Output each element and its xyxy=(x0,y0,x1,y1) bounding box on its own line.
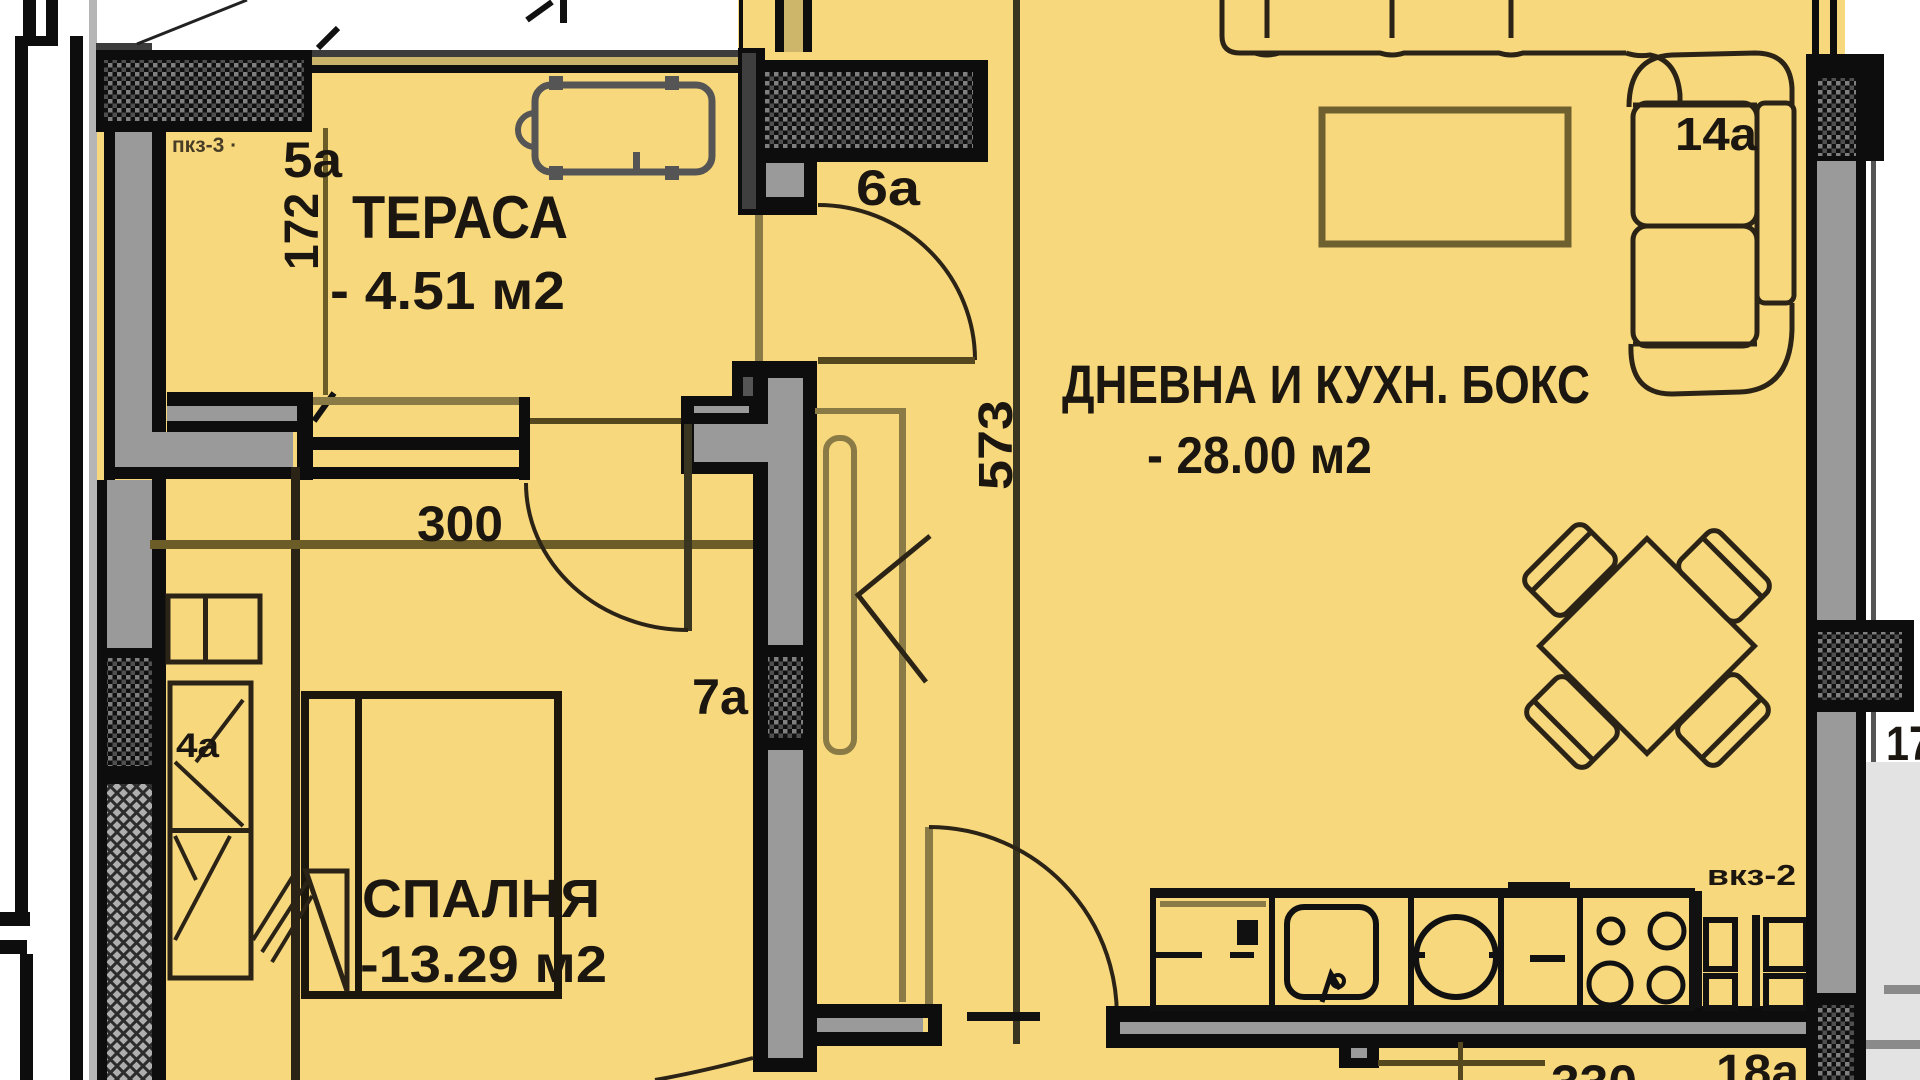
svg-text:17: 17 xyxy=(1886,718,1920,771)
svg-text:ДНЕВНА И КУХН. БОКС: ДНЕВНА И КУХН. БОКС xyxy=(1062,355,1590,415)
svg-text:330: 330 xyxy=(1551,1055,1637,1080)
svg-text:14а: 14а xyxy=(1675,108,1757,160)
svg-text:- 4.51 м2: - 4.51 м2 xyxy=(330,261,565,321)
svg-text:вкз-2: вкз-2 xyxy=(1707,860,1796,892)
svg-text:6а: 6а xyxy=(856,160,921,216)
svg-text:ТЕРАСА: ТЕРАСА xyxy=(352,184,568,251)
svg-text:172: 172 xyxy=(276,193,329,270)
svg-text:5а: 5а xyxy=(283,132,343,188)
svg-text:пкз-3 ∙: пкз-3 ∙ xyxy=(172,134,236,157)
svg-text:4а: 4а xyxy=(176,727,220,765)
svg-text:18а: 18а xyxy=(1716,1046,1799,1080)
svg-text:- 28.00 м2: - 28.00 м2 xyxy=(1147,427,1372,485)
svg-text:7а: 7а xyxy=(692,669,749,725)
svg-text:300: 300 xyxy=(417,496,503,552)
svg-text:573: 573 xyxy=(970,400,1023,490)
svg-text:СПАЛНЯ: СПАЛНЯ xyxy=(362,869,600,929)
svg-text:-13.29 м2: -13.29 м2 xyxy=(360,936,607,994)
